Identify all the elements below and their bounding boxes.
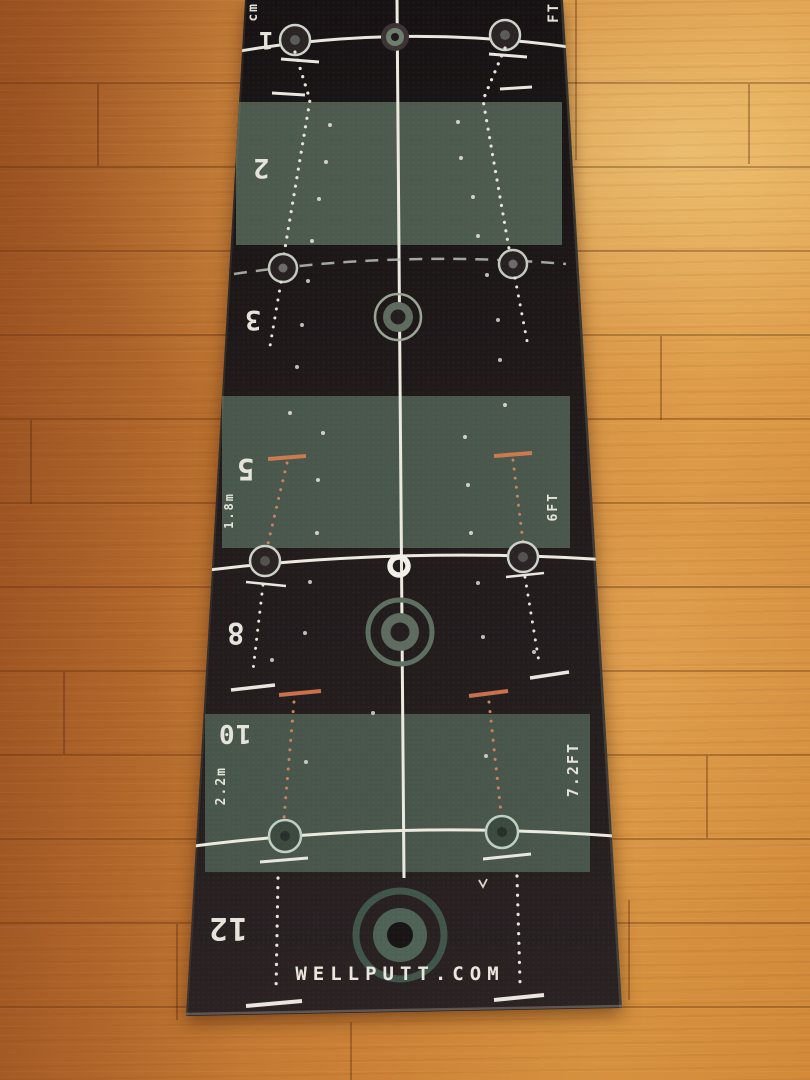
hole-marker-1-left [280,25,319,62]
plank-joint [350,1022,352,1080]
hole-marker-3-left [269,254,297,282]
plank-joint [628,900,630,1000]
plank-joint [30,420,32,504]
tick-1-right [500,87,532,89]
brand-url: WELLPUTT.COM [295,963,504,985]
plank-joint [97,84,99,166]
bullseye-target-8 [368,600,432,664]
center-ring-8 [390,557,408,575]
hole-marker-1-right [489,20,527,57]
putting-mat-surface: cm FT 1 2 3 5 8 10 12 1.8m 6FT 2.2m 7.2F… [186,0,622,1016]
hole-marker-3-right [499,250,527,278]
plank-joint [176,924,178,1020]
distance-label-metric-5: 1.8m [222,492,236,532]
check-mark-12 [479,879,487,887]
unit-label-cm: cm [246,2,261,26]
tick-1-left [272,93,305,95]
green-panel-5 [222,396,570,548]
plank-joint [660,336,662,420]
section-number-5: 5 [236,452,254,486]
green-panel-10 [205,714,590,872]
tick-8-right [530,672,569,678]
distance-label-imperial-5: 6FT [546,492,561,525]
hole-marker-8-left [246,546,286,586]
plank-joint [63,672,65,754]
center-target-1 [381,23,409,51]
section-number-1: 1 [258,26,273,54]
section-number-10: 10 [218,718,251,748]
plank-joint [748,84,750,164]
section-number-3: 3 [244,304,261,335]
unit-label-ft: FT [546,2,562,27]
orange-gate-bars-8 [279,691,508,696]
hole-marker-10-left [269,820,301,852]
distance-label-metric-10: 2.2m [214,766,229,809]
tick-12-right [494,995,544,1000]
section-number-12: 12 [208,910,247,946]
tick-12-left [246,1001,302,1006]
putting-mat: cm FT 1 2 3 5 8 10 12 1.8m 6FT 2.2m 7.2F… [186,0,622,1016]
section-number-2: 2 [252,152,269,183]
distance-label-imperial-10: 7.2FT [564,742,582,801]
section-number-8: 8 [226,616,244,650]
plank-joint [706,756,708,838]
tick-8-left [231,685,275,690]
hole-marker-10-right [486,816,518,848]
